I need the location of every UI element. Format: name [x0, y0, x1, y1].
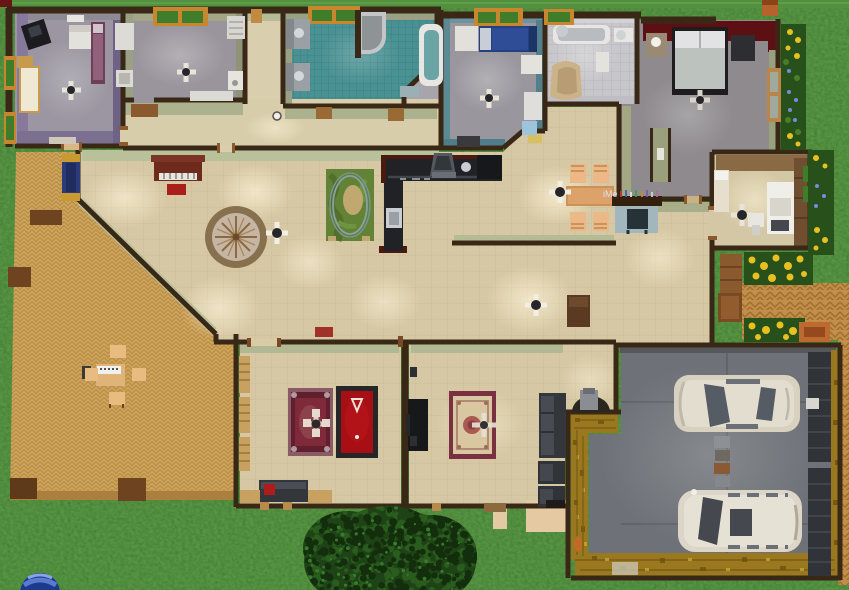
svg-text:iMe: iMe	[603, 189, 618, 199]
